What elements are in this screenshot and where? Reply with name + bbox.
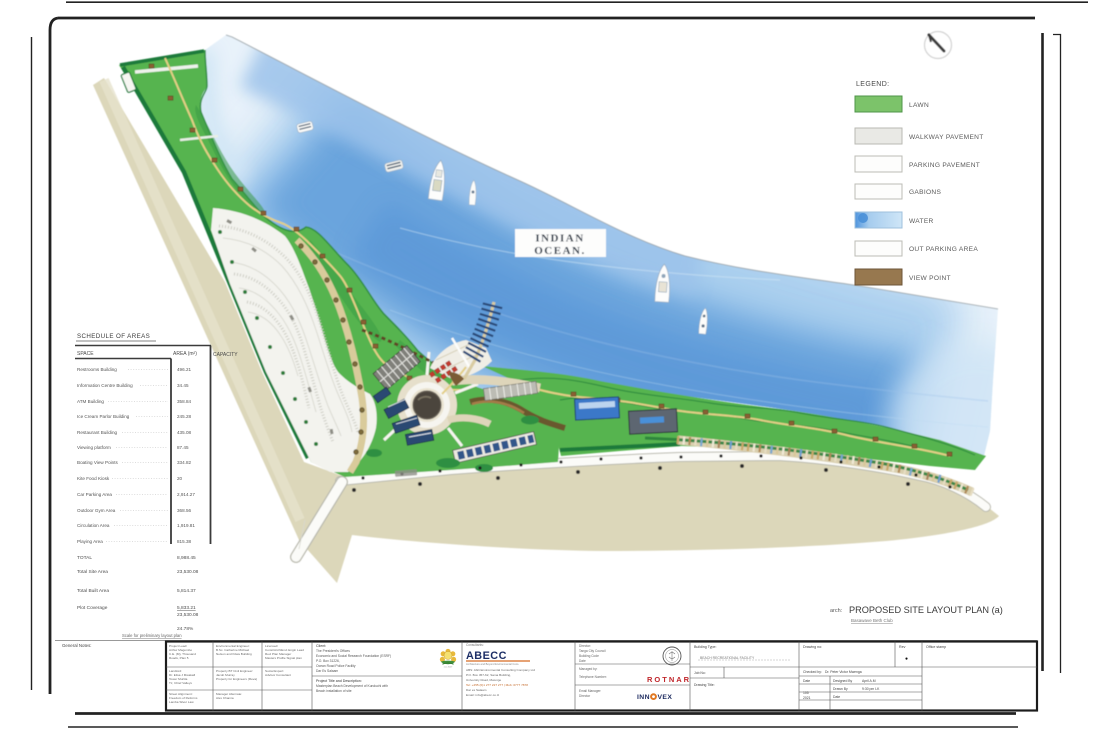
svg-text:Email Manager:: Email Manager: — [579, 689, 601, 693]
svg-text:Checked by:: Checked by: — [803, 670, 822, 674]
svg-text:Date: Date — [833, 695, 840, 699]
svg-text:Car Parking Area: Car Parking Area — [77, 492, 112, 497]
svg-text:Advisor Consultant: Advisor Consultant — [265, 673, 291, 677]
svg-text:Architecture and Beyond Enviro: Architecture and Beyond Environmental Co… — [466, 662, 519, 666]
svg-text:ABS: Abili Environmental Consu: ABS: Abili Environmental Consulting Comp… — [466, 668, 535, 672]
svg-text:2,914.27: 2,914.27 — [177, 492, 195, 497]
svg-text:5,833.21: 5,833.21 — [177, 605, 196, 611]
svg-text:SCHEDULE OF AREAS: SCHEDULE OF AREAS — [77, 333, 150, 340]
svg-text:Drawing Title:: Drawing Title: — [694, 683, 715, 687]
svg-text:Alex Chamia: Alex Chamia — [216, 696, 234, 700]
svg-text:20: 20 — [177, 476, 183, 481]
svg-text:Drawn By: Drawn By — [833, 687, 848, 691]
svg-text:Telephone Number:: Telephone Number: — [579, 675, 607, 679]
svg-text:Designed By: Designed By — [833, 679, 853, 683]
svg-text:Information Centre Building: Information Centre Building — [77, 383, 133, 388]
svg-text:23,530.08: 23,530.08 — [177, 612, 199, 618]
svg-text:435.08: 435.08 — [177, 430, 191, 435]
svg-text:Drawing no:: Drawing no: — [803, 645, 822, 649]
svg-text:Ocean Road Police Facility: Ocean Road Police Facility — [316, 664, 356, 668]
svg-text:334.82: 334.82 — [177, 460, 191, 465]
svg-text:SPACE: SPACE — [77, 351, 94, 357]
svg-text:Economic and Social Research F: Economic and Social Research Foundation … — [316, 654, 391, 658]
svg-text:Ice Cream Parlor Building: Ice Cream Parlor Building — [77, 414, 130, 419]
svg-text:Consultants:: Consultants: — [466, 643, 484, 647]
svg-text:ABECC: ABECC — [466, 650, 507, 662]
svg-text:April A.M: April A.M — [862, 679, 876, 683]
svg-text:INDIAN: INDIAN — [535, 233, 584, 245]
svg-text:Roads, Plan 5: Roads, Plan 5 — [169, 656, 189, 660]
svg-text:Lamba Silver Law: Lamba Silver Law — [169, 700, 194, 704]
svg-text:P.O. Box 457-62, Sama Building: P.O. Box 457-62, Sama Building, — [466, 673, 511, 677]
svg-text:Date: Date — [803, 679, 810, 683]
svg-text:Masterplan Beach Development o: Masterplan Beach Development of Kunduchi… — [316, 684, 388, 688]
svg-text:87.45: 87.45 — [177, 445, 189, 450]
svg-text:ATM Building: ATM Building — [77, 399, 104, 404]
svg-text:Boating View Points: Boating View Points — [77, 460, 118, 465]
svg-text:Director: Director — [579, 694, 591, 698]
svg-text:University Road, Mwenge: University Road, Mwenge — [466, 678, 502, 682]
svg-text:General Notes:: General Notes: — [62, 643, 92, 648]
svg-text:Building Type:: Building Type: — [694, 645, 717, 649]
svg-text:LAWN: LAWN — [909, 102, 929, 109]
svg-text:496.21: 496.21 — [177, 367, 191, 372]
svg-text:Masters Profile Signal plan: Masters Profile Signal plan — [265, 656, 302, 660]
svg-text:VIEW POINT: VIEW POINT — [909, 275, 951, 282]
svg-text:Director:: Director: — [579, 644, 591, 648]
svg-text:Tel: +255 (0)1 277 227 277 | M: Tel: +255 (0)1 277 227 277 | Mob: 0777 7… — [466, 683, 528, 687]
svg-text:Email: info@abecc.co.tz: Email: info@abecc.co.tz — [466, 693, 500, 697]
svg-text:arch:: arch: — [830, 608, 843, 614]
svg-text:Dar es Salaam: Dar es Salaam — [466, 688, 487, 692]
svg-text:WALKWAY PAVEMENT: WALKWAY PAVEMENT — [909, 134, 984, 141]
svg-text:Playing Area: Playing Area — [77, 539, 103, 544]
svg-text:Dar Es Salaam: Dar Es Salaam — [316, 669, 338, 673]
svg-text:P.O. Box 31226,: P.O. Box 31226, — [316, 659, 340, 663]
svg-text:105: 105 — [803, 691, 809, 695]
svg-text:Viewing platform: Viewing platform — [77, 445, 111, 450]
svg-text:Scale for preliminary layout p: Scale for preliminary layout plan — [122, 633, 182, 638]
svg-text:24.78%: 24.78% — [177, 626, 194, 632]
svg-text:Outdoor Gym Area: Outdoor Gym Area — [77, 508, 116, 513]
svg-text:LEGEND:: LEGEND: — [856, 81, 890, 88]
svg-text:Date: Date — [579, 659, 586, 663]
svg-text:The President's Offices: The President's Offices — [316, 649, 350, 653]
svg-text:Tz, Chief Valleys: Tz, Chief Valleys — [169, 681, 192, 685]
svg-text:ROTNAR: ROTNAR — [647, 675, 691, 684]
svg-text:1,919.81: 1,919.81 — [177, 523, 195, 528]
svg-text:CAPACITY: CAPACITY — [213, 352, 238, 358]
svg-text:PARKING PAVEMENT: PARKING PAVEMENT — [909, 162, 980, 169]
svg-text:Plot Coverage: Plot Coverage — [77, 605, 108, 611]
svg-text:Property for Engineers (Reva): Property for Engineers (Reva) — [216, 677, 257, 681]
svg-text:Project Title and Description:: Project Title and Description: — [316, 679, 362, 683]
svg-text:Circulation Area: Circulation Area — [77, 523, 110, 528]
svg-text:GABIONS: GABIONS — [909, 189, 941, 196]
svg-text:358.84: 358.84 — [177, 399, 191, 404]
svg-text:5,814.37: 5,814.37 — [177, 588, 196, 594]
svg-text:Kite Food Kiosk: Kite Food Kiosk — [77, 476, 110, 481]
svg-text:TOTAL: TOTAL — [77, 555, 92, 561]
svg-text:●: ● — [905, 656, 908, 662]
svg-text:Client:: Client: — [316, 644, 326, 648]
svg-text:Total Built Area: Total Built Area — [77, 588, 109, 594]
svg-text:PROPOSED SITE LAYOUT PLAN (a): PROPOSED SITE LAYOUT PLAN (a) — [849, 605, 1003, 615]
svg-text:Restaurant Building: Restaurant Building — [77, 430, 118, 435]
svg-text:368.56: 368.56 — [177, 508, 191, 513]
svg-text:OUT PARKING AREA: OUT PARKING AREA — [909, 246, 978, 253]
svg-text:815.38: 815.38 — [177, 539, 191, 544]
svg-text:23,530.08: 23,530.08 — [177, 569, 199, 575]
svg-text:INN: INN — [637, 694, 650, 701]
svg-text:VEX: VEX — [658, 694, 673, 701]
svg-text:Managed by:: Managed by: — [579, 667, 598, 671]
svg-text:Building Code: Building Code — [579, 654, 599, 658]
svg-text:Rev: Rev — [899, 645, 906, 649]
svg-text:Dr. Peter Victor Mwenga: Dr. Peter Victor Mwenga — [825, 670, 862, 674]
svg-text:Nelson and Kilwa Building: Nelson and Kilwa Building — [216, 652, 252, 656]
svg-text:34.45: 34.45 — [177, 383, 189, 388]
svg-text:Basawave Beth Club: Basawave Beth Club — [851, 618, 893, 623]
svg-text:8,988.45: 8,988.45 — [177, 555, 196, 561]
svg-text:Total Site Area: Total Site Area — [77, 569, 108, 575]
svg-text:AREA (m²): AREA (m²) — [173, 351, 197, 357]
svg-text:BEACH RECREATIONAL FACILITY: BEACH RECREATIONAL FACILITY — [700, 656, 755, 660]
svg-text:WATER: WATER — [909, 218, 934, 225]
svg-text:est. 2017: est. 2017 — [444, 665, 453, 668]
svg-text:2021: 2021 — [803, 696, 811, 700]
svg-text:OCEAN.: OCEAN. — [534, 245, 585, 257]
svg-text:9:30 pm LK: 9:30 pm LK — [862, 687, 880, 691]
svg-text:Beach installation of site: Beach installation of site — [316, 689, 352, 693]
svg-text:245.28: 245.28 — [177, 414, 191, 419]
svg-text:Job No:: Job No: — [694, 671, 706, 675]
svg-text:Tanga City Council: Tanga City Council — [579, 649, 606, 653]
svg-text:Office stamp: Office stamp — [926, 645, 946, 649]
svg-text:Restrooms Building: Restrooms Building — [77, 367, 117, 372]
